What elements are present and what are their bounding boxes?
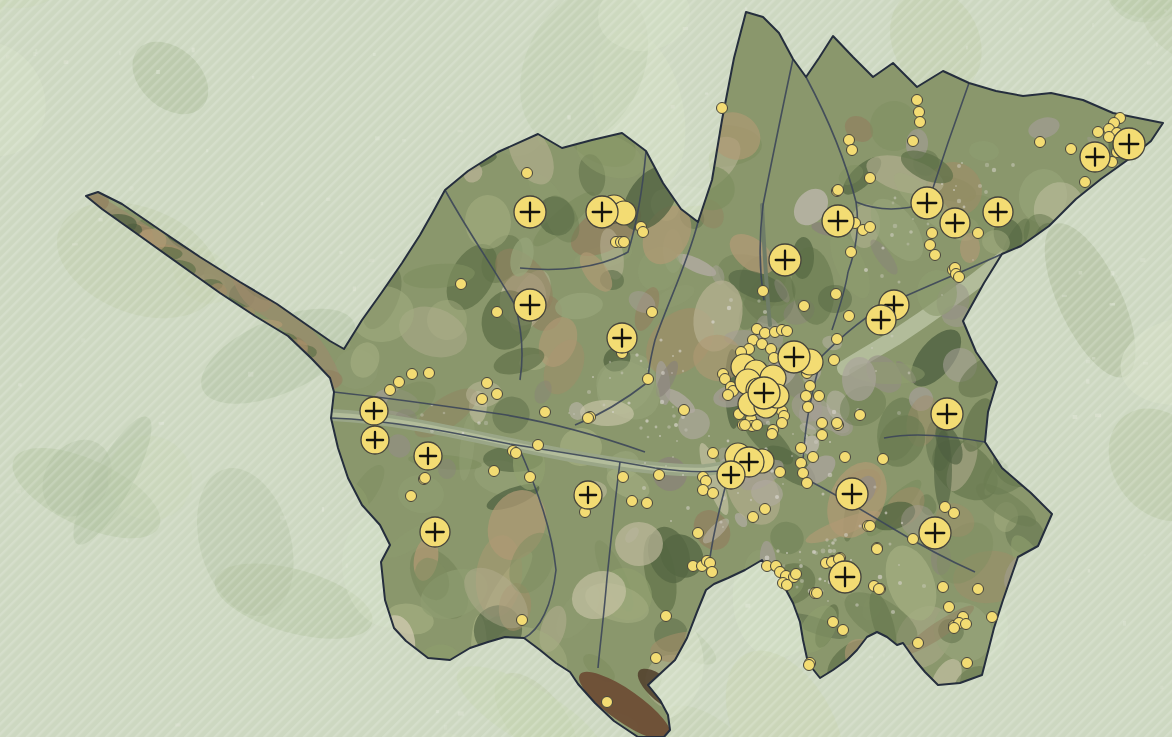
facility-marker-dot[interactable]: [517, 615, 528, 626]
facility-marker-dot[interactable]: [492, 389, 503, 400]
facility-marker-plus[interactable]: [919, 517, 951, 549]
facility-marker-dot[interactable]: [602, 697, 613, 708]
facility-marker-dot[interactable]: [840, 452, 851, 463]
facility-marker-dot[interactable]: [973, 584, 984, 595]
facility-marker-dot[interactable]: [865, 222, 876, 233]
facility-marker-plus[interactable]: [361, 426, 389, 454]
facility-marker-dot[interactable]: [855, 410, 866, 421]
facility-marker-dot[interactable]: [1080, 177, 1091, 188]
facility-marker-plus[interactable]: [360, 397, 388, 425]
facility-marker-dot[interactable]: [647, 307, 658, 318]
facility-marker-dot[interactable]: [831, 289, 842, 300]
facility-marker-dot[interactable]: [847, 145, 858, 156]
facility-marker-dot[interactable]: [878, 454, 889, 465]
facility-marker-dot[interactable]: [489, 466, 500, 477]
facility-marker-dot[interactable]: [796, 458, 807, 469]
facility-marker-dot[interactable]: [760, 328, 771, 339]
facility-marker-plus[interactable]: [778, 341, 810, 373]
facility-marker-dot[interactable]: [927, 228, 938, 239]
facility-marker-dot[interactable]: [938, 582, 949, 593]
facility-marker-dot[interactable]: [913, 638, 924, 649]
facility-marker-dot[interactable]: [619, 237, 630, 248]
facility-marker-dot[interactable]: [802, 478, 813, 489]
facility-marker-dot[interactable]: [796, 443, 807, 454]
facility-marker-dot[interactable]: [973, 228, 984, 239]
facility-marker-dot[interactable]: [987, 612, 998, 623]
facility-marker-plus[interactable]: [1080, 142, 1110, 172]
facility-marker-dot[interactable]: [707, 567, 718, 578]
facility-marker-dot[interactable]: [962, 658, 973, 669]
facility-marker-dot[interactable]: [961, 619, 972, 630]
facility-marker-dot[interactable]: [832, 334, 843, 345]
map-viewport[interactable]: [0, 0, 1172, 737]
facility-marker-dot[interactable]: [798, 468, 809, 479]
facility-marker-dot[interactable]: [525, 472, 536, 483]
facility-marker-dot[interactable]: [799, 301, 810, 312]
facility-marker-dot[interactable]: [627, 496, 638, 507]
facility-marker-dot[interactable]: [944, 602, 955, 613]
facility-marker-dot[interactable]: [661, 611, 672, 622]
facility-marker-dot[interactable]: [723, 390, 734, 401]
facility-marker-dot[interactable]: [930, 250, 941, 261]
facility-marker-dot[interactable]: [838, 625, 849, 636]
facility-marker-dot[interactable]: [540, 407, 551, 418]
facility-marker-dot[interactable]: [832, 418, 843, 429]
facility-marker-dot[interactable]: [865, 521, 876, 532]
facility-marker-dot[interactable]: [817, 430, 828, 441]
facility-marker-dot[interactable]: [872, 544, 883, 555]
facility-marker-dot[interactable]: [846, 247, 857, 258]
facility-marker-dot[interactable]: [801, 391, 812, 402]
facility-marker-dot[interactable]: [767, 429, 778, 440]
facility-marker-dot[interactable]: [812, 588, 823, 599]
facility-marker-plus[interactable]: [822, 205, 854, 237]
facility-marker-dot[interactable]: [522, 168, 533, 179]
facility-marker-plus[interactable]: [829, 561, 861, 593]
facility-marker-dot[interactable]: [814, 391, 825, 402]
facility-marker-dot[interactable]: [708, 448, 719, 459]
facility-marker-dot[interactable]: [758, 286, 769, 297]
facility-marker-dot[interactable]: [618, 472, 629, 483]
facility-marker-dot[interactable]: [1093, 127, 1104, 138]
facility-marker-dot[interactable]: [643, 374, 654, 385]
facility-marker-dot[interactable]: [775, 467, 786, 478]
facility-marker-dot[interactable]: [874, 584, 885, 595]
facility-marker-dot[interactable]: [394, 377, 405, 388]
facility-marker-dot[interactable]: [829, 355, 840, 366]
facility-marker-dot[interactable]: [908, 136, 919, 147]
facility-marker-plus[interactable]: [931, 398, 963, 430]
facility-marker-dot[interactable]: [949, 508, 960, 519]
facility-marker-plus[interactable]: [983, 197, 1013, 227]
facility-marker-dot[interactable]: [954, 272, 965, 283]
facility-marker-dot[interactable]: [817, 418, 828, 429]
facility-marker-dot[interactable]: [420, 473, 431, 484]
facility-marker-dot[interactable]: [949, 623, 960, 634]
facility-marker-dot[interactable]: [828, 617, 839, 628]
facility-marker-dot[interactable]: [833, 185, 844, 196]
facility-marker-dot[interactable]: [698, 485, 709, 496]
facility-marker-dot[interactable]: [915, 117, 926, 128]
facility-marker-dot[interactable]: [654, 470, 665, 481]
facility-marker-dot[interactable]: [1035, 137, 1046, 148]
facility-marker-dot[interactable]: [651, 653, 662, 664]
facility-marker-plus[interactable]: [586, 196, 618, 228]
facility-marker-dot[interactable]: [805, 381, 816, 392]
facility-marker-plus[interactable]: [748, 377, 780, 409]
facility-marker-dot[interactable]: [803, 402, 814, 413]
facility-marker-dot[interactable]: [752, 420, 763, 431]
facility-marker-dot[interactable]: [424, 368, 435, 379]
facility-marker-plus[interactable]: [940, 208, 970, 238]
facility-marker-plus[interactable]: [574, 481, 602, 509]
facility-marker-dot[interactable]: [844, 135, 855, 146]
facility-marker-dot[interactable]: [693, 528, 704, 539]
facility-marker-dot[interactable]: [679, 405, 690, 416]
facility-marker-plus[interactable]: [414, 442, 442, 470]
facility-marker-dot[interactable]: [1066, 144, 1077, 155]
facility-marker-dot[interactable]: [717, 103, 728, 114]
facility-marker-dot[interactable]: [760, 504, 771, 515]
facility-marker-dot[interactable]: [477, 394, 488, 405]
facility-marker-dot[interactable]: [804, 660, 815, 671]
facility-marker-dot[interactable]: [708, 488, 719, 499]
facility-marker-dot[interactable]: [482, 378, 493, 389]
facility-marker-plus[interactable]: [866, 305, 896, 335]
facility-marker-dot[interactable]: [791, 569, 802, 580]
facility-marker-dot[interactable]: [808, 452, 819, 463]
facility-marker-dot[interactable]: [492, 307, 503, 318]
facility-marker-dot[interactable]: [748, 512, 759, 523]
facility-marker-plus[interactable]: [607, 323, 637, 353]
facility-marker-dot[interactable]: [914, 107, 925, 118]
facility-marker-dot[interactable]: [782, 326, 793, 337]
facility-marker-plus[interactable]: [769, 244, 801, 276]
facility-marker-dot[interactable]: [456, 279, 467, 290]
facility-marker-dot[interactable]: [511, 448, 522, 459]
facility-marker-plus[interactable]: [836, 478, 868, 510]
facility-marker-dot[interactable]: [385, 385, 396, 396]
facility-marker-plus[interactable]: [717, 461, 745, 489]
facility-marker-dot[interactable]: [925, 240, 936, 251]
facility-marker-plus[interactable]: [514, 196, 546, 228]
facility-marker-dot[interactable]: [406, 491, 417, 502]
facility-marker-dot[interactable]: [865, 173, 876, 184]
facility-marker-dot[interactable]: [740, 420, 751, 431]
metro-satellite-map: [0, 0, 1172, 737]
facility-marker-dot[interactable]: [407, 369, 418, 380]
facility-marker-dot[interactable]: [642, 498, 653, 509]
facility-marker-dot[interactable]: [844, 311, 855, 322]
facility-marker-dot[interactable]: [638, 227, 649, 238]
facility-marker-plus[interactable]: [1113, 128, 1145, 160]
facility-marker-plus[interactable]: [514, 289, 546, 321]
facility-marker-dot[interactable]: [912, 95, 923, 106]
facility-marker-plus[interactable]: [420, 517, 450, 547]
facility-marker-dot[interactable]: [908, 534, 919, 545]
facility-marker-dot[interactable]: [777, 418, 788, 429]
facility-marker-dot[interactable]: [533, 440, 544, 451]
facility-marker-plus[interactable]: [911, 187, 943, 219]
facility-marker-dot[interactable]: [583, 413, 594, 424]
